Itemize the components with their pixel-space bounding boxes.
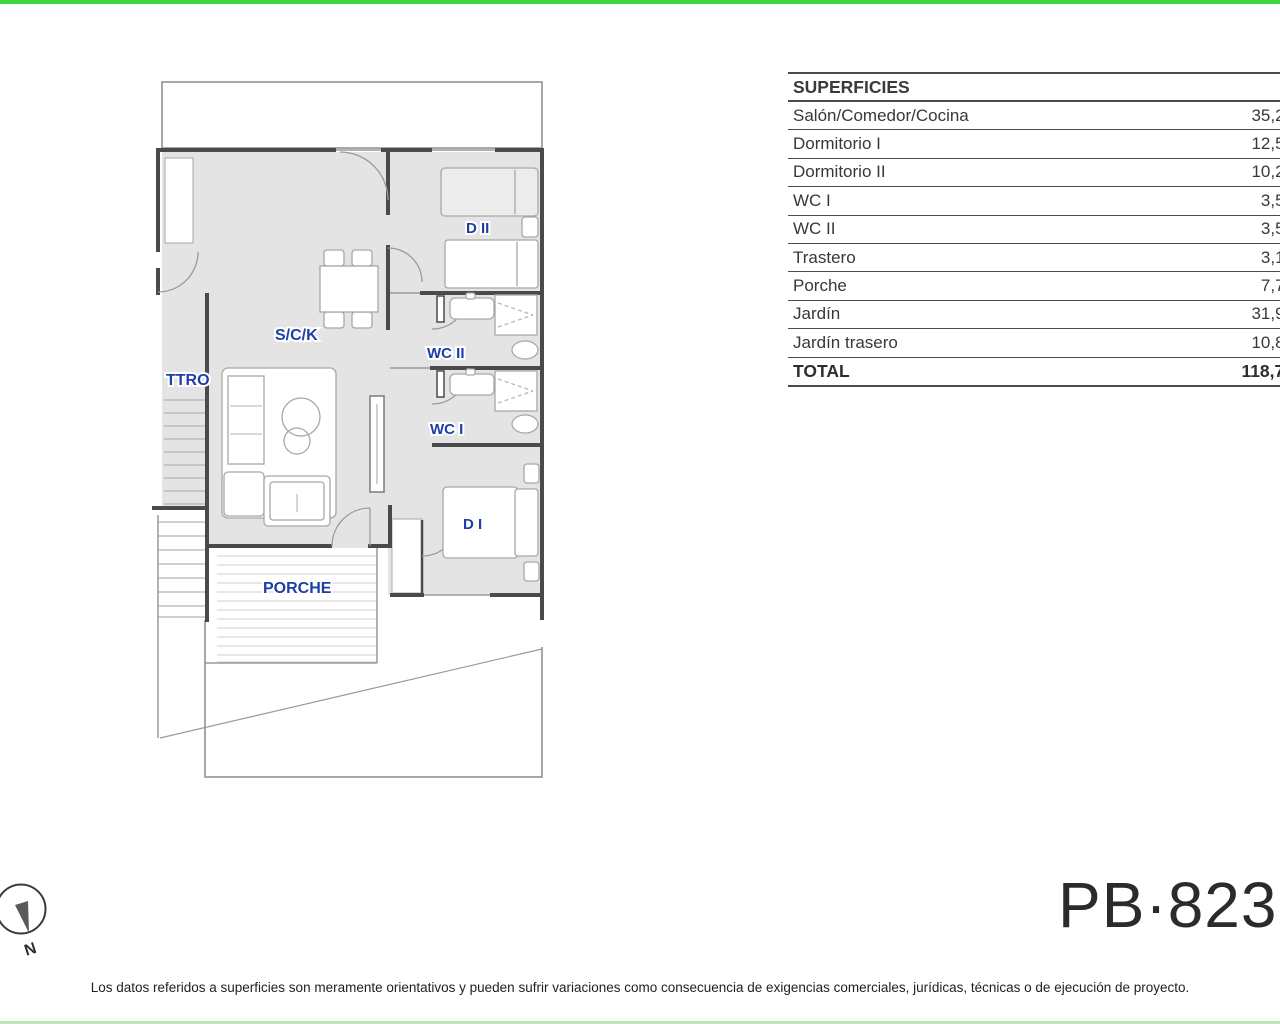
room-label-wc2: WC II: [427, 345, 465, 362]
table-row: Salón/Comedor/Cocina 35,20: [788, 102, 1280, 130]
row-value: 3,55: [1261, 191, 1280, 211]
chair: [324, 312, 344, 328]
table-row: Trastero 3,19: [788, 244, 1280, 272]
table-total-row: TOTAL 118,70: [788, 358, 1280, 387]
row-value: 31,95: [1251, 304, 1280, 324]
room-label-porch: PORCHE: [263, 580, 332, 597]
rear-garden-outline: [162, 82, 542, 148]
table-row: WC II 3,55: [788, 216, 1280, 244]
nightstand: [522, 217, 538, 237]
toilet: [512, 341, 538, 359]
row-label: Jardín trasero: [793, 333, 898, 353]
nightstand: [524, 562, 539, 581]
plan-code: PB·823: [1058, 868, 1277, 942]
bedroom1-closet: [392, 519, 422, 593]
room-label-wc1: WC I: [430, 421, 463, 438]
room-label-bedroom1: D I: [463, 516, 482, 533]
sink: [450, 298, 494, 319]
row-value: 3,55: [1261, 219, 1280, 239]
room-label-trastero: TTRO: [166, 372, 210, 389]
row-label: Dormitorio II: [793, 162, 886, 182]
row-label: Salón/Comedor/Cocina: [793, 106, 969, 126]
bed-pillows: [515, 489, 538, 556]
row-label: Jardín: [793, 304, 840, 324]
garden-outline: [205, 620, 542, 777]
row-value: 10,83: [1251, 333, 1280, 353]
room-label-living: S/C/K: [275, 327, 318, 344]
shower: [495, 295, 537, 335]
table-row: WC I 3,55: [788, 187, 1280, 215]
exterior-steps: [158, 522, 205, 617]
total-value: 118,70: [1241, 361, 1280, 382]
total-label: TOTAL: [793, 361, 850, 382]
compass: N: [0, 885, 46, 960]
row-label: WC II: [793, 219, 836, 239]
row-label: Trastero: [793, 248, 856, 268]
surfaces-table-header: SUPERFICIES: [788, 74, 1280, 102]
bed-single: [441, 168, 538, 216]
sink: [450, 374, 494, 395]
row-value: 7,70: [1261, 276, 1280, 296]
row-label: WC I: [793, 191, 831, 211]
bed-single: [445, 240, 538, 288]
entry-closet: [165, 158, 193, 243]
north-label: N: [22, 940, 38, 960]
nightstand: [524, 464, 539, 483]
chair: [352, 312, 372, 328]
row-value: 35,20: [1251, 106, 1280, 126]
chair: [352, 250, 372, 266]
porch-hatch: [217, 556, 377, 662]
table-row: Jardín 31,95: [788, 301, 1280, 329]
shower: [495, 371, 537, 411]
surfaces-table: SUPERFICIES Salón/Comedor/Cocina 35,20 D…: [788, 72, 1280, 387]
row-value: 12,50: [1251, 134, 1280, 154]
pocket-door: [370, 396, 384, 492]
room-label-bedroom2: D II: [466, 220, 489, 237]
faucet: [466, 369, 475, 375]
table-row: Porche 7,70: [788, 272, 1280, 300]
table-row: Jardín trasero 10,83: [788, 329, 1280, 357]
faucet: [466, 293, 475, 299]
row-label: Dormitorio I: [793, 134, 881, 154]
disclaimer-text: Los datos referidos a superficies son me…: [0, 980, 1280, 995]
chair: [324, 250, 344, 266]
toilet: [512, 415, 538, 433]
row-value: 10,23: [1251, 162, 1280, 182]
table-row: Dormitorio II 10,23: [788, 159, 1280, 187]
row-value: 3,19: [1261, 248, 1280, 268]
row-label: Porche: [793, 276, 847, 296]
table-row: Dormitorio I 12,50: [788, 130, 1280, 158]
